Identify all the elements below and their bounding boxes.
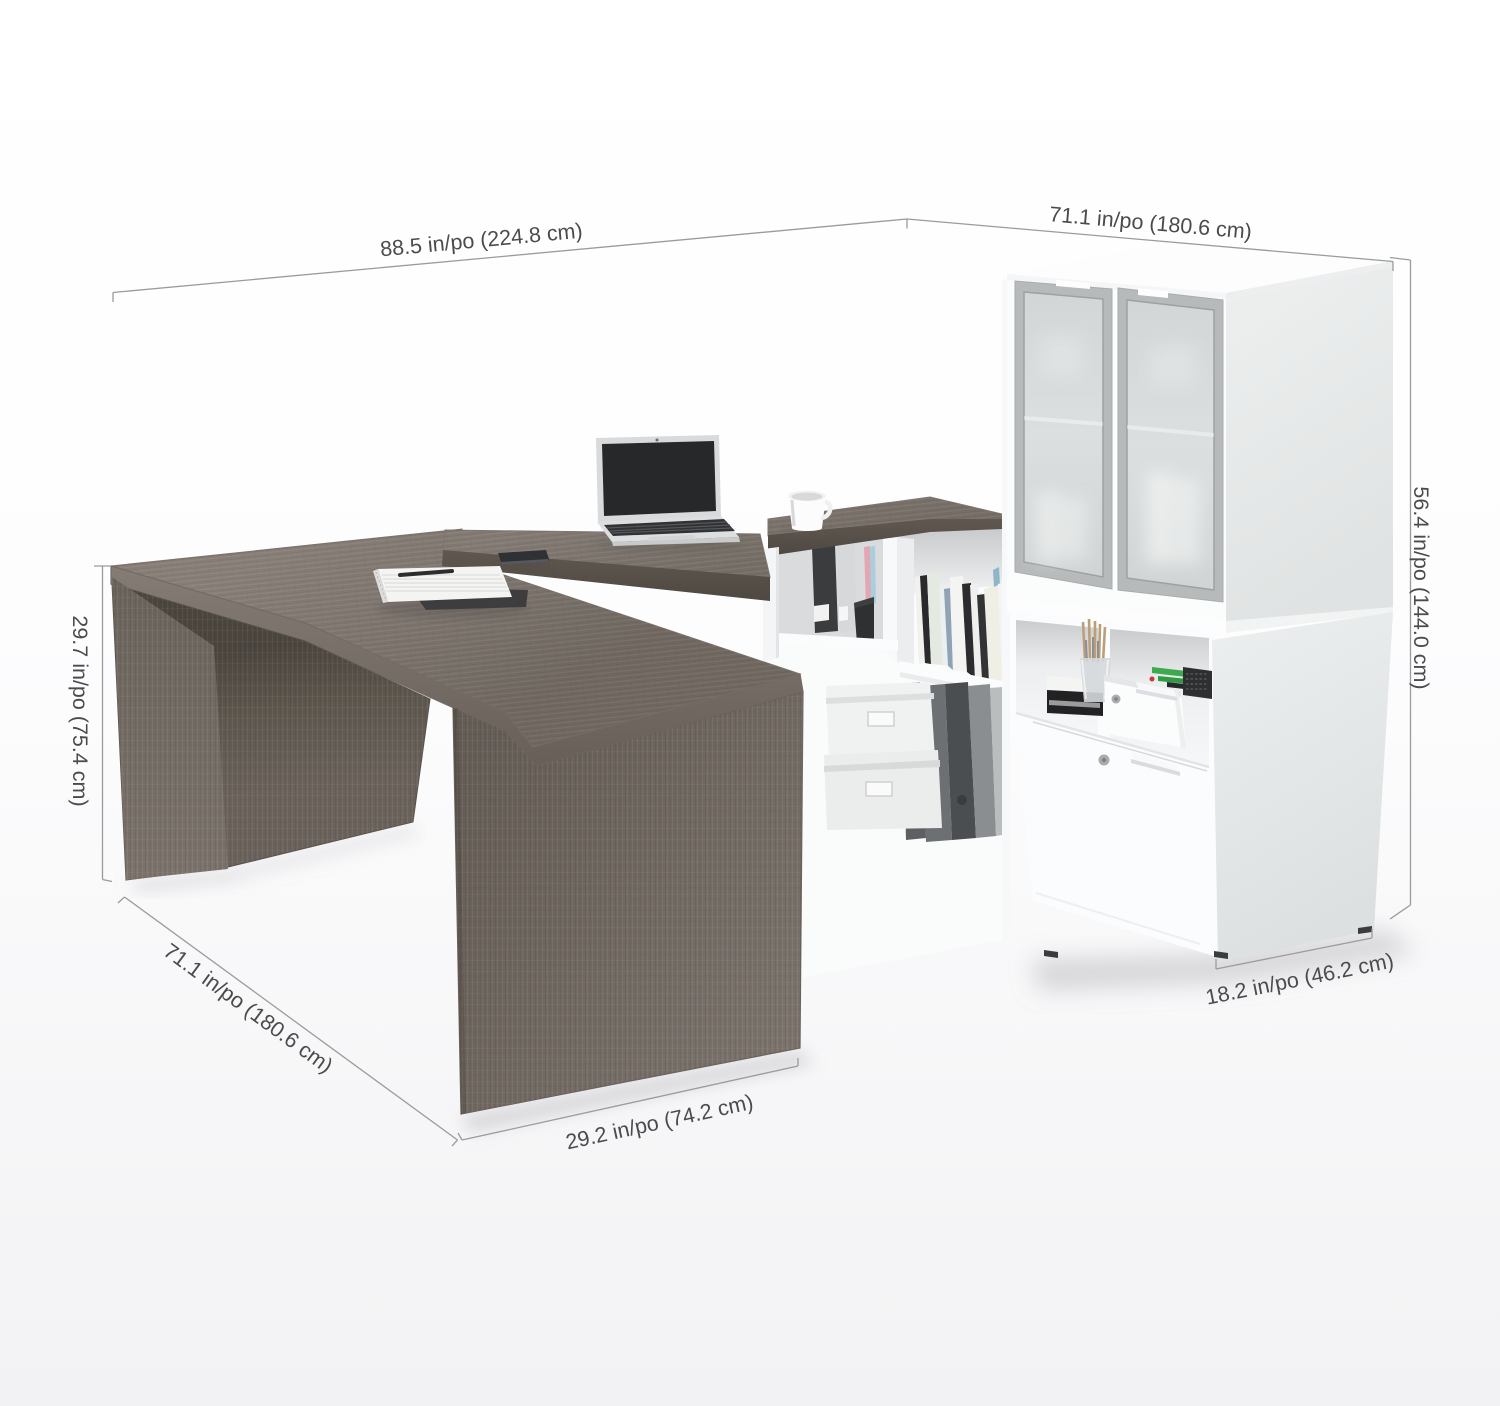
svg-text:56.4 in/po (144.0 cm): 56.4 in/po (144.0 cm) xyxy=(1409,486,1433,689)
svg-text:29.7 in/po (75.4 cm): 29.7 in/po (75.4 cm) xyxy=(68,615,92,806)
